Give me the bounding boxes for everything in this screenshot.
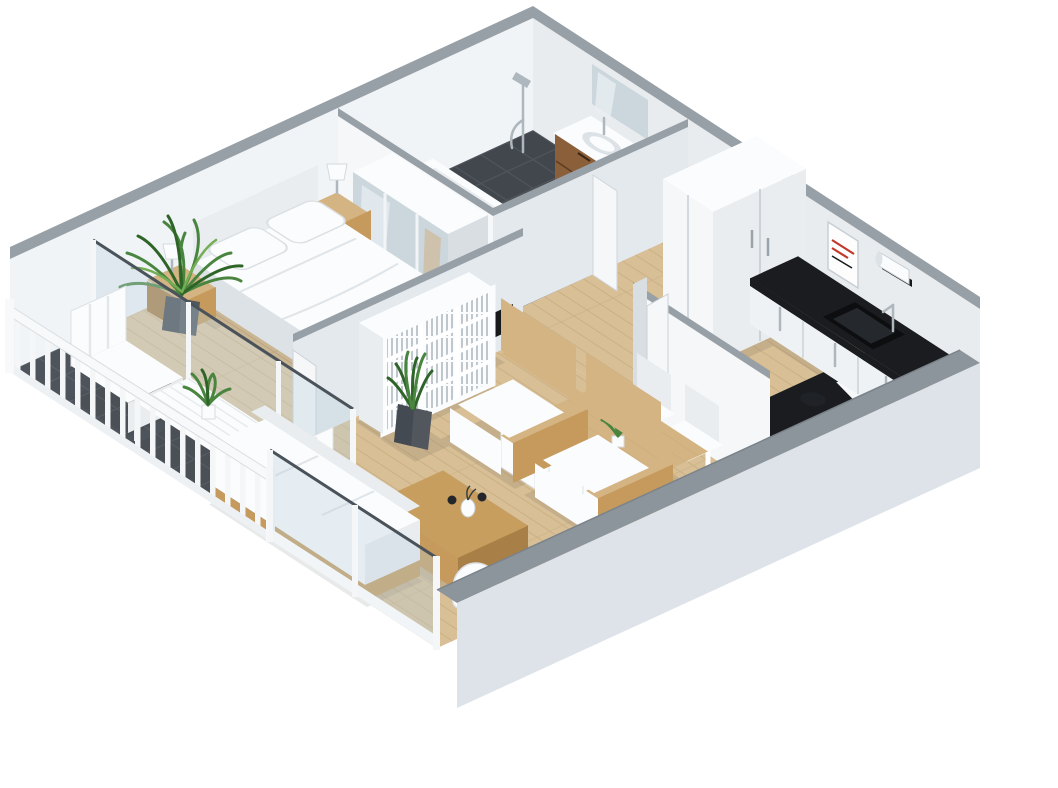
table-lamp xyxy=(327,164,347,180)
railing-corner-post xyxy=(5,299,14,373)
floor-plan-scene xyxy=(0,0,1058,788)
bookshelf-side xyxy=(359,323,383,434)
floor-plan-3d-render xyxy=(0,0,1058,788)
bathroom-door-open xyxy=(593,175,617,291)
